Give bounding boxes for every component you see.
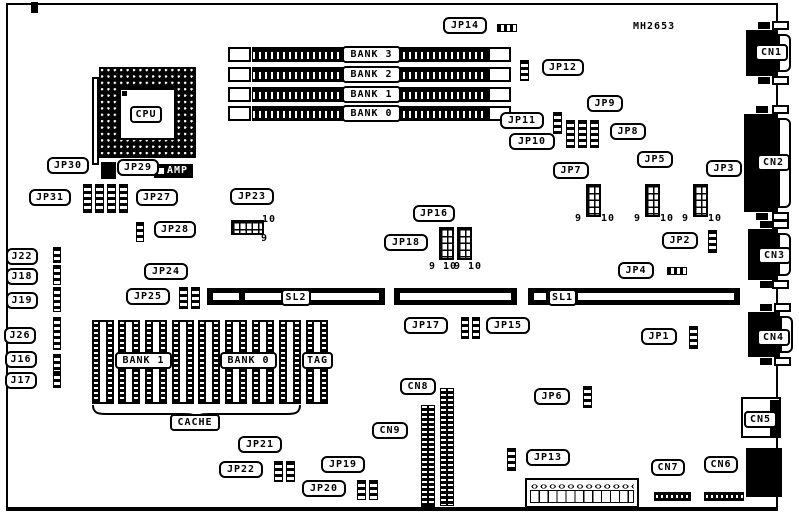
- slot-mid: [394, 288, 517, 305]
- cn1-port-mount: [758, 22, 770, 29]
- jp31-jumper: [83, 184, 92, 213]
- callout-jp21: JP21: [238, 436, 282, 453]
- cn7-strip: [654, 492, 691, 501]
- jp24-jumper: [191, 287, 200, 309]
- simm-clip-right: [488, 87, 511, 102]
- cn8-connector: [440, 388, 454, 506]
- slot-contact-strip: [245, 293, 281, 300]
- callout-jp23: JP23: [230, 188, 274, 205]
- label-cache: CACHE: [170, 414, 220, 431]
- jp22-jumper: [274, 461, 283, 482]
- jp10-jumper: [566, 120, 575, 148]
- callout-jp22: JP22: [219, 461, 263, 478]
- callout-jp16: JP16: [413, 205, 455, 222]
- pin-number: 10: [708, 213, 722, 224]
- callout-jp25: JP25: [126, 288, 170, 305]
- cn3-port-tab: [772, 220, 789, 229]
- callout-jp5: JP5: [637, 151, 673, 168]
- cn4-port-tab: [774, 357, 791, 366]
- jp2-jumper: [708, 230, 717, 253]
- callout-jp6: JP6: [534, 388, 570, 405]
- callout-j16: J16: [5, 351, 37, 368]
- callout-jp17: JP17: [404, 317, 448, 334]
- cn3-port-tab: [772, 280, 789, 289]
- jp25-jumper: [179, 287, 188, 309]
- slot-contact-strip: [311, 293, 379, 300]
- motherboard-jumper-diagram: MH2653AMPCPUBANK 3BANK 2BANK 1BANK 0SL2S…: [0, 0, 799, 520]
- cache-chip: [279, 320, 301, 404]
- label-bank-3: BANK 3: [342, 46, 401, 63]
- j16-jumper: [53, 354, 61, 372]
- label-cn3: CN3: [758, 247, 791, 264]
- jp23-header: [231, 220, 264, 235]
- j26-jumper: [53, 317, 61, 350]
- label-sl1: SL1: [548, 289, 577, 306]
- label-sl2: SL2: [281, 289, 311, 306]
- cn2-port-mount: [756, 106, 768, 113]
- amp-text: AMP: [167, 165, 188, 176]
- callout-jp3: JP3: [706, 160, 742, 177]
- cpu-socket-lever: [92, 77, 99, 165]
- jp14-jumper: [497, 24, 517, 32]
- callout-jp14: JP14: [443, 17, 487, 34]
- power-pins-square: [530, 490, 634, 503]
- label-cn1: CN1: [755, 44, 788, 61]
- jp1-jumper: [689, 326, 698, 349]
- simm-clip-left: [228, 47, 251, 62]
- label-tag: TAG: [302, 352, 333, 369]
- pin-number: 9: [682, 213, 689, 224]
- j17-jumper: [53, 372, 61, 388]
- simm-clip-left: [228, 87, 251, 102]
- cache-chip: [198, 320, 220, 404]
- jp3-header: [693, 184, 708, 217]
- cn3-port-mount: [760, 281, 772, 288]
- label-cpu: CPU: [130, 106, 162, 123]
- jp8-jumper: [590, 120, 599, 148]
- cn1-port-tab: [772, 21, 789, 30]
- simm-clip-right: [488, 47, 511, 62]
- jp12-jumper: [520, 60, 529, 81]
- callout-jp15: JP15: [486, 317, 530, 334]
- callout-cn6: CN6: [704, 456, 738, 473]
- jp11-jumper: [553, 112, 562, 134]
- jp9-jumper: [578, 120, 587, 148]
- callout-jp20: JP20: [302, 480, 346, 497]
- callout-jp28: JP28: [154, 221, 196, 238]
- pin-number: 9: [261, 233, 268, 244]
- slot-contact-strip: [400, 293, 511, 300]
- j18-jumper: [53, 265, 61, 285]
- callout-jp12: JP12: [542, 59, 584, 76]
- callout-jp8: JP8: [610, 123, 646, 140]
- cn2-port-mount: [756, 213, 768, 220]
- cn4-port-mount: [760, 358, 772, 365]
- pin-number: 10: [601, 213, 615, 224]
- callout-j26: J26: [4, 327, 36, 344]
- j19-jumper: [53, 287, 61, 312]
- slot-contact-strip: [213, 293, 239, 300]
- pin1-mark: [122, 91, 127, 96]
- jp28-jumper: [136, 222, 144, 242]
- cn4-port-tab: [774, 303, 791, 312]
- label-cn2: CN2: [757, 154, 790, 171]
- jp29-jumper: [107, 184, 116, 213]
- cache-chip: [172, 320, 194, 404]
- callout-jp2: JP2: [662, 232, 698, 249]
- slot-contact-strip: [534, 293, 546, 300]
- label-cn4: CN4: [757, 329, 790, 346]
- jp19-jumper: [369, 480, 378, 500]
- jp16-header: [457, 227, 472, 260]
- label-cn5: CN5: [744, 411, 777, 428]
- pin-number: 9 10: [429, 261, 457, 272]
- callout-jp11: JP11: [500, 112, 544, 129]
- callout-jp13: JP13: [526, 449, 570, 466]
- jp27-jumper: [119, 184, 128, 213]
- j22-jumper: [53, 247, 61, 263]
- label-bank-0: BANK 0: [220, 352, 277, 369]
- simm-clip-right: [488, 67, 511, 82]
- cn9-connector: [421, 405, 435, 507]
- callout-cn9: CN9: [372, 422, 408, 439]
- cn6-strip: [704, 492, 744, 501]
- label-bank-1: BANK 1: [342, 86, 401, 103]
- callout-jp30: JP30: [47, 157, 89, 174]
- callout-j17: J17: [5, 372, 37, 389]
- callout-j22: J22: [6, 248, 38, 265]
- callout-jp31: JP31: [29, 189, 71, 206]
- jp5-header: [645, 184, 660, 217]
- callout-j18: J18: [6, 268, 38, 285]
- label-bank-1: BANK 1: [115, 352, 172, 369]
- jp21-jumper: [286, 461, 295, 482]
- callout-jp9: JP9: [587, 95, 623, 112]
- callout-cn7: CN7: [651, 459, 685, 476]
- jp15-jumper: [472, 317, 480, 339]
- amp-marking: AMP: [154, 164, 193, 178]
- cn4-port-mount: [760, 304, 772, 311]
- callout-jp7: JP7: [553, 162, 589, 179]
- callout-jp27: JP27: [136, 189, 178, 206]
- label-bank-2: BANK 2: [342, 66, 401, 83]
- callout-jp18: JP18: [384, 234, 428, 251]
- callout-jp10: JP10: [509, 133, 555, 150]
- power-connector: [525, 478, 639, 508]
- jp13-jumper: [507, 448, 516, 471]
- callout-jp29: JP29: [117, 159, 159, 176]
- label-bank-0: BANK 0: [342, 105, 401, 122]
- simm-clip-left: [228, 67, 251, 82]
- jp6-jumper: [583, 386, 592, 408]
- jp7-header: [586, 184, 601, 217]
- part-number: MH2653: [633, 21, 675, 32]
- pin-number: 9 10: [454, 261, 482, 272]
- slot-contact-strip: [578, 293, 734, 300]
- cn2-port-tab: [772, 105, 789, 114]
- cn1-port-mount: [758, 77, 770, 84]
- callout-cn8: CN8: [400, 378, 436, 395]
- jp20-jumper: [357, 480, 366, 500]
- simm-clip-left: [228, 106, 251, 121]
- jp30-jumper: [95, 184, 104, 213]
- pin-number: 10: [262, 214, 276, 225]
- callout-jp24: JP24: [144, 263, 188, 280]
- cn1-port-tab: [772, 76, 789, 85]
- jp18-header: [439, 227, 454, 260]
- jp4-jumper: [667, 267, 687, 275]
- board-edge-stub: [31, 2, 38, 13]
- callout-jp19: JP19: [321, 456, 365, 473]
- callout-j19: J19: [6, 292, 38, 309]
- pin-number: 9: [575, 213, 582, 224]
- pin-number: 9: [634, 213, 641, 224]
- cn3-port-mount: [760, 221, 772, 228]
- pin-number: 10: [660, 213, 674, 224]
- ic-chip: [101, 162, 116, 179]
- callout-jp4: JP4: [618, 262, 654, 279]
- jp17-jumper: [461, 317, 469, 339]
- corner-connector: [746, 448, 782, 497]
- callout-jp1: JP1: [641, 328, 677, 345]
- cache-chip: [92, 320, 114, 404]
